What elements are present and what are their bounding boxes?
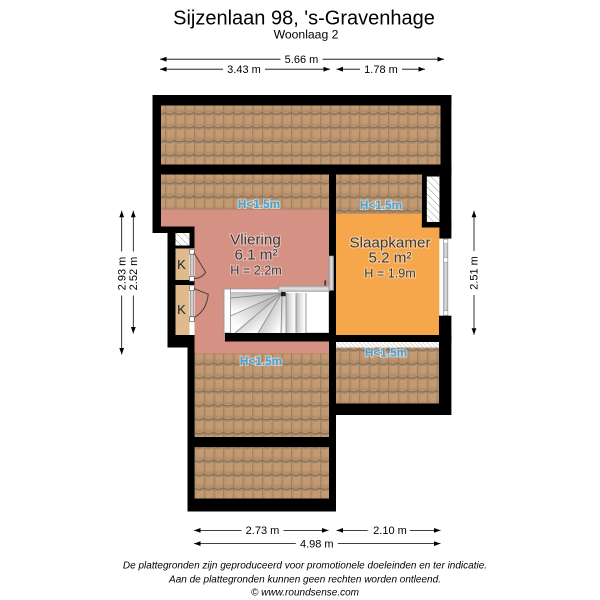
svg-text:1.78 m: 1.78 m [364,64,398,76]
svg-text:2.10 m: 2.10 m [373,525,407,537]
svg-text:H<1.5m: H<1.5m [365,346,407,360]
svg-text:© www.roundsense.com: © www.roundsense.com [251,588,359,599]
svg-text:H<1.5m: H<1.5m [360,198,402,212]
svg-text:2.51 m: 2.51 m [469,256,481,290]
svg-text:H = 2.2m: H = 2.2m [230,263,281,277]
svg-text:6.1 m²: 6.1 m² [234,247,277,264]
svg-text:5.2 m²: 5.2 m² [368,250,411,267]
svg-text:2.52 m: 2.52 m [128,257,140,291]
svg-text:H<1.5m: H<1.5m [240,354,282,368]
svg-text:K: K [177,302,186,317]
svg-text:Woonlaag 2: Woonlaag 2 [274,28,339,42]
svg-text:2.93 m: 2.93 m [116,257,128,291]
svg-text:5.66 m: 5.66 m [285,54,319,66]
svg-text:K: K [177,257,186,272]
svg-text:3.43 m: 3.43 m [227,64,261,76]
svg-text:Sijzenlaan 98, 's-Gravenhage: Sijzenlaan 98, 's-Gravenhage [173,7,435,29]
svg-text:H = 1.9m: H = 1.9m [364,266,415,280]
svg-text:H<1.5m: H<1.5m [238,197,280,211]
svg-text:4.98 m: 4.98 m [300,538,334,550]
svg-text:2.73 m: 2.73 m [246,525,280,537]
svg-text:Aan de plattegronden kunnen ge: Aan de plattegronden kunnen geen rechten… [168,575,441,586]
svg-text:De plattegronden zijn geproduc: De plattegronden zijn geproduceerd voor … [123,561,487,572]
